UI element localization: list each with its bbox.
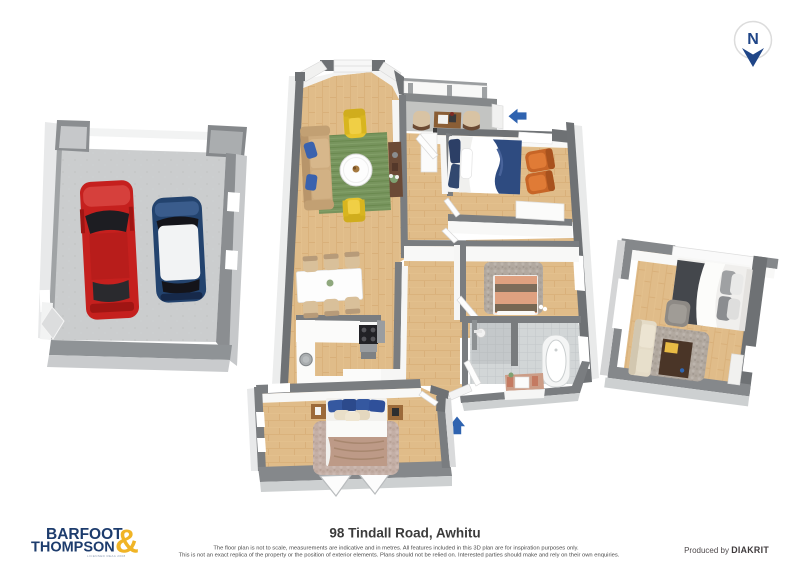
svg-text:N: N: [747, 31, 759, 48]
svg-text:The floor plan is not to scale: The floor plan is not to scale, measurem…: [213, 546, 579, 552]
svg-text:Produced by DIAKRIT: Produced by DIAKRIT: [684, 545, 769, 555]
svg-text:This is not an exact replica o: This is not an exact replica of the prop…: [179, 553, 620, 559]
svg-text:LICENSED REAA 2008: LICENSED REAA 2008: [87, 554, 126, 558]
svg-text:98 Tindall Road, Awhitu: 98 Tindall Road, Awhitu: [329, 526, 480, 541]
